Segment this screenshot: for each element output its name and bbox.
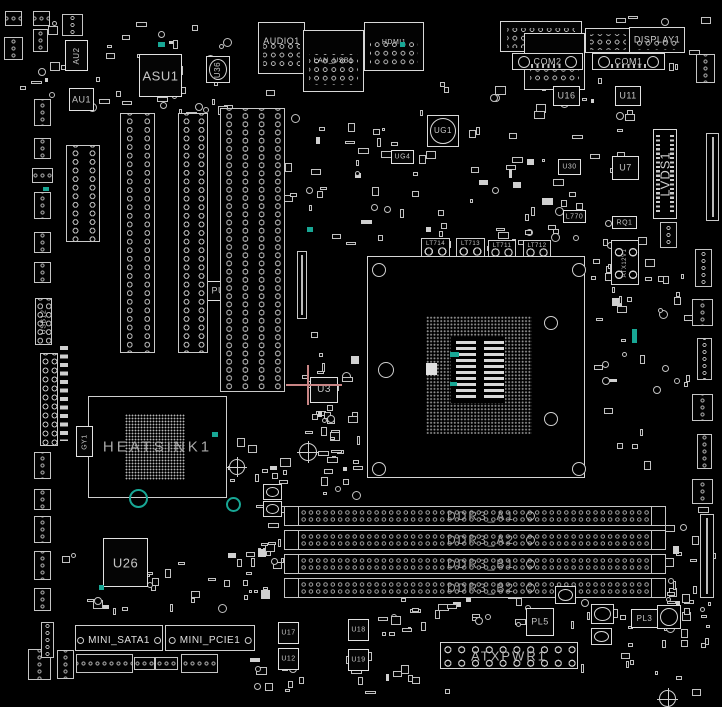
hdmi1-connector[interactable]: HDMI1 (364, 22, 424, 71)
passive-component (246, 552, 255, 557)
mini-sata1-slot[interactable]: MINI_SATA1 (75, 625, 163, 651)
u12-chip[interactable]: U12 (278, 648, 299, 670)
ug1-chip-label: UG1 (434, 127, 452, 135)
passive-component (52, 21, 57, 26)
fiducial-mark (659, 690, 676, 707)
passive-component (667, 601, 676, 604)
passive-component (322, 418, 327, 423)
passive-component (617, 306, 627, 313)
passive-component (582, 98, 587, 101)
teal-marker (43, 187, 49, 191)
passive-component (498, 232, 509, 239)
passive-component (581, 664, 584, 673)
passive-component (471, 167, 479, 173)
passive-component (382, 632, 386, 636)
io-connector-small[interactable] (585, 28, 631, 53)
passive-component (212, 99, 215, 105)
passive-component (191, 598, 195, 603)
passive-component (348, 123, 355, 132)
pin-header (41, 622, 54, 658)
inductor (591, 628, 612, 645)
passive-component (343, 467, 347, 471)
ddr3-b2-slot[interactable]: DDR3_B2 (284, 578, 666, 598)
lvds1-connector[interactable]: LVDS1 (653, 129, 677, 219)
passive-component (372, 187, 379, 196)
passive-component (319, 353, 323, 357)
teal-marker (158, 42, 165, 47)
passive-component (254, 683, 261, 690)
ddr3-a1-slot[interactable]: DDR3_A1 (284, 506, 666, 526)
passive-component (572, 135, 583, 139)
pin-header (4, 37, 23, 60)
usb12-header[interactable]: USB12 (35, 298, 52, 345)
passive-component (673, 546, 679, 554)
u30-chip[interactable]: U30 (558, 159, 581, 175)
passive-component (94, 597, 102, 605)
lt713-pad-label: LT713 (461, 241, 480, 247)
passive-component (278, 539, 281, 547)
passive-component (401, 598, 406, 602)
pin-header (34, 588, 51, 611)
mini-sata1-slot-label: MINI_SATA1 (73, 636, 165, 646)
u36-inductor[interactable]: U36 (206, 56, 230, 83)
ddr3-b1-slot-label: DDR3_B1 (447, 558, 515, 570)
passive-component (99, 99, 110, 104)
com1-port[interactable]: COM1 (592, 53, 665, 70)
atxpwr1-connector[interactable]: ATXPWR1 (440, 642, 578, 669)
passive-component (285, 163, 292, 172)
passive-component (551, 233, 560, 242)
passive-component (686, 375, 690, 382)
rq1-chip[interactable]: RQ1 (612, 216, 637, 229)
passive-component (353, 466, 363, 470)
u16-chip[interactable]: U16 (553, 86, 580, 106)
passive-component (103, 605, 109, 609)
cpu-socket[interactable] (367, 256, 585, 478)
passive-component (49, 92, 55, 98)
passive-component (173, 40, 178, 49)
front-panel-header (40, 353, 58, 446)
atxpwr1-connector-label: ATXPWR1 (471, 649, 547, 662)
heatsink1[interactable]: HEATSINK1 (88, 396, 227, 498)
pin-header (62, 14, 83, 36)
teal-marker (212, 432, 218, 437)
passive-component (674, 297, 681, 305)
passive-component (62, 556, 70, 563)
edge-connector-thin (297, 251, 307, 319)
passive-component (627, 297, 632, 302)
passive-component (306, 187, 313, 194)
passive-component (674, 378, 680, 384)
passive-component (255, 666, 261, 672)
passive-component (444, 87, 449, 93)
passive-component (322, 363, 325, 372)
passive-component (573, 235, 579, 241)
passive-component (342, 377, 353, 382)
passive-component (622, 352, 627, 357)
u19-chip-label: U19 (351, 657, 365, 664)
passive-component (645, 277, 652, 281)
passive-component (605, 220, 612, 227)
passive-component (38, 68, 46, 76)
passive-component (644, 461, 651, 470)
passive-component (439, 231, 443, 237)
inductor (263, 484, 282, 500)
lt712-pad-label: LT712 (527, 243, 546, 249)
passive-component (485, 614, 491, 620)
passive-component (331, 450, 342, 453)
resistor-strip (60, 346, 68, 441)
u7-chip[interactable]: U7 (612, 156, 639, 180)
pin-slot-2[interactable] (178, 113, 208, 353)
lt711-pad-label: LT711 (493, 243, 512, 249)
passive-component (412, 608, 419, 612)
teal-marker (307, 227, 313, 232)
audio1-connector[interactable]: AUDIO1 (258, 22, 305, 74)
lan-usb1-connector[interactable]: LAN_USB1 (303, 30, 364, 92)
passive-component (640, 355, 645, 364)
passive-component (681, 274, 684, 279)
passive-component (356, 160, 359, 166)
passive-component (192, 25, 198, 31)
passive-component (249, 590, 252, 593)
mini-pcie1-slot[interactable]: MINI_PCIE1 (165, 625, 255, 651)
passive-component (475, 617, 483, 625)
display1-connector-label: DISPLAY1 (634, 36, 680, 45)
passive-component (616, 112, 624, 120)
pl3-chip-label: PL3 (637, 615, 653, 623)
passive-component (490, 94, 498, 102)
u3-chip-label: U3 (317, 385, 331, 395)
teal-marker (400, 42, 405, 47)
passive-component (96, 77, 100, 82)
passive-component (158, 31, 165, 38)
passive-component (299, 677, 304, 684)
passive-component (669, 63, 674, 71)
passive-component (681, 629, 688, 638)
passive-component (318, 451, 329, 456)
passive-component (661, 18, 669, 26)
passive-component (553, 179, 564, 186)
passive-component (251, 558, 255, 567)
passive-component (178, 562, 185, 565)
passive-component (700, 607, 705, 612)
passive-component (317, 191, 323, 198)
u3-chip[interactable]: U3 (310, 377, 338, 403)
passive-component (681, 640, 688, 647)
pin-header (181, 654, 218, 673)
passive-component (438, 210, 444, 216)
passive-component (327, 457, 338, 463)
passive-component (250, 658, 260, 662)
passive-component (665, 525, 675, 532)
ddr3-b1-slot[interactable]: DDR3_B1 (284, 554, 666, 574)
passive-component (645, 259, 655, 267)
passive-component (348, 416, 358, 423)
passive-component (246, 572, 252, 575)
passive-component (116, 91, 121, 97)
passive-component (626, 661, 629, 668)
u18-chip[interactable]: U18 (348, 619, 369, 641)
passive-component (542, 198, 553, 205)
passive-component (352, 491, 361, 500)
passive-component (285, 689, 290, 692)
passive-component (684, 608, 690, 615)
passive-component (48, 26, 58, 35)
passive-component (496, 228, 505, 231)
passive-component (31, 81, 42, 84)
passive-component (680, 524, 687, 531)
passive-component (542, 159, 545, 162)
passive-component (470, 199, 473, 203)
passive-component (402, 628, 412, 632)
passive-component (690, 559, 697, 562)
passive-component (512, 157, 523, 163)
passive-component (682, 594, 690, 603)
pin-slot-1[interactable] (120, 113, 155, 353)
passive-component (426, 151, 436, 159)
passive-component (693, 586, 697, 594)
com2-port[interactable]: COM2 (512, 53, 583, 70)
passive-component (323, 492, 327, 495)
passive-component (587, 612, 590, 620)
passive-component (598, 78, 602, 84)
passive-component (378, 235, 383, 241)
pin-header (34, 452, 51, 479)
passive-component (391, 616, 401, 625)
passive-component (400, 209, 404, 218)
passive-component (617, 443, 623, 449)
passive-component (288, 681, 293, 688)
pin-header (697, 338, 712, 380)
passive-component (561, 200, 567, 207)
passive-component (692, 689, 701, 696)
u17-chip[interactable]: U17 (278, 622, 299, 644)
pin-header (34, 232, 51, 253)
passive-component (283, 470, 287, 475)
passive-component (318, 411, 322, 417)
passive-component (479, 180, 488, 185)
passive-component (358, 677, 363, 685)
pin-header (34, 551, 51, 580)
u36-inductor-label: U36 (214, 61, 222, 77)
au2-chip-label: AU2 (73, 47, 81, 64)
passive-component (218, 604, 227, 613)
passive-component (365, 691, 376, 694)
passive-component (492, 187, 499, 194)
passive-component (353, 460, 359, 464)
passive-component (440, 82, 445, 87)
pin-header (134, 657, 155, 670)
passive-component (309, 205, 312, 211)
passive-component (663, 276, 669, 284)
au1-chip[interactable]: AU1 (69, 88, 94, 111)
com1-port-label: COM1 (614, 57, 642, 66)
passive-component (106, 53, 115, 59)
passive-component (335, 486, 341, 492)
pin-slot-3[interactable] (220, 108, 285, 392)
u11-chip[interactable]: U11 (615, 86, 641, 106)
passive-component (706, 625, 710, 628)
passive-component (330, 437, 335, 440)
pin-header (660, 222, 677, 248)
pin-header (34, 138, 51, 159)
passive-component (476, 127, 480, 135)
passive-component (421, 622, 426, 631)
au1-chip-label: AU1 (72, 95, 91, 104)
passive-component (263, 587, 268, 590)
pcb-boardview: AUDIO1LAN_USB1HDMI1LAN_USB2DISPLAY1COM2C… (0, 0, 722, 707)
passive-component (640, 429, 643, 436)
pin-header (34, 262, 51, 283)
teal-marker (99, 585, 104, 590)
asu1-chip[interactable]: ASU1 (139, 54, 182, 97)
pin-header (692, 299, 713, 326)
passive-component (621, 339, 626, 342)
passive-component (708, 602, 711, 606)
passive-component (122, 607, 128, 611)
ddr3-a2-slot[interactable]: DDR3_A2 (284, 530, 666, 550)
passive-component (195, 103, 203, 111)
ug4-chip[interactable]: UG4 (391, 150, 414, 164)
passive-component (419, 155, 426, 164)
passive-component (321, 427, 327, 436)
passive-component (591, 99, 594, 103)
passive-component (136, 22, 147, 27)
passive-component (248, 445, 257, 453)
inductor (591, 604, 614, 624)
pin-header (34, 192, 51, 219)
pl3-chip[interactable]: PL3 (631, 609, 658, 628)
pin-header (34, 516, 51, 543)
passive-component (20, 86, 26, 90)
atx12v1-connector[interactable]: ATX12V1 (611, 240, 639, 285)
passive-component (208, 578, 216, 581)
passive-component (509, 169, 512, 178)
passive-component (152, 578, 159, 586)
pin-header (32, 168, 53, 183)
passive-component (516, 622, 521, 627)
u30-chip-label: U30 (562, 164, 576, 171)
passive-component (604, 408, 613, 414)
passive-component (531, 207, 535, 216)
display1-connector[interactable]: DISPLAY1 (629, 27, 685, 53)
passive-component (237, 559, 242, 567)
rq1-chip-label: RQ1 (617, 219, 633, 226)
passive-component (612, 287, 615, 293)
passive-component (291, 114, 300, 123)
passive-component (701, 643, 706, 648)
passive-component (223, 38, 232, 47)
usb12-header-label: USB12 (40, 309, 47, 334)
passive-component (262, 469, 268, 473)
pl5-chip[interactable]: PL5 (526, 608, 554, 636)
u26-chip[interactable]: U26 (103, 538, 148, 587)
passive-component (632, 444, 638, 449)
passive-component (527, 159, 534, 165)
passive-component (593, 259, 600, 264)
passive-component (621, 653, 630, 659)
u7-chip-label: U7 (619, 164, 632, 173)
passive-component (581, 599, 589, 607)
passive-component (412, 677, 420, 684)
pin-header (33, 11, 50, 26)
passive-component (591, 276, 596, 280)
passive-component (165, 569, 171, 578)
passive-component (389, 632, 395, 636)
l770-chip[interactable]: L770 (563, 210, 586, 223)
passive-component (122, 35, 130, 40)
u19-chip[interactable]: U19 (348, 649, 369, 671)
passive-component (382, 128, 385, 131)
passive-component (426, 227, 431, 232)
passive-component (413, 172, 418, 176)
ug1-chip[interactable]: UG1 (427, 115, 459, 147)
passive-component (516, 598, 522, 606)
passive-component (675, 64, 678, 70)
gy1-chip[interactable]: GY1 (76, 426, 93, 457)
passive-component (343, 479, 349, 485)
u18-chip-label: U18 (351, 627, 365, 634)
lvds1-connector-label: LVDS1 (659, 151, 672, 196)
passive-component (441, 223, 447, 229)
passive-component (228, 553, 236, 558)
u11-chip-label: U11 (619, 92, 636, 101)
passive-component (320, 187, 327, 190)
passive-component (662, 365, 669, 372)
passive-component (469, 130, 476, 138)
passive-component (361, 220, 372, 224)
asu1-chip-label: ASU1 (143, 69, 179, 82)
pin-slot-a[interactable] (66, 145, 100, 242)
pin-header (695, 249, 712, 287)
passive-component (45, 78, 48, 82)
passive-component (237, 438, 245, 447)
passive-component (603, 239, 608, 246)
passive-component (311, 332, 318, 338)
u12-chip-label: U12 (281, 656, 295, 663)
passive-component (270, 466, 277, 470)
passive-component (50, 62, 60, 71)
passive-component (271, 558, 278, 565)
ug4-chip-label: UG4 (395, 154, 411, 161)
passive-component (673, 581, 676, 590)
passive-component (268, 523, 279, 528)
passive-component (630, 660, 634, 665)
ddr3-a1-slot-label: DDR3_A1 (447, 510, 515, 522)
audio1-connector-label: AUDIO1 (263, 37, 300, 46)
atx12v1-connector-label: ATX12V1 (622, 248, 628, 277)
fiducial-mark (229, 459, 245, 475)
l770-chip-label: L770 (566, 213, 584, 220)
passive-component (466, 598, 471, 602)
pin-header (692, 479, 713, 504)
passive-component (332, 234, 341, 239)
passive-component (357, 436, 360, 445)
pin-header (34, 489, 51, 510)
passive-component (509, 133, 517, 139)
pin-header (155, 657, 178, 670)
passive-component (319, 127, 325, 131)
au2-chip[interactable]: AU2 (65, 40, 88, 71)
passive-component (602, 377, 610, 385)
passive-component (280, 458, 291, 467)
passive-component (305, 431, 313, 434)
passive-component (345, 141, 355, 144)
passive-component (619, 296, 622, 304)
passive-component (401, 665, 409, 674)
pin-header (697, 434, 712, 469)
